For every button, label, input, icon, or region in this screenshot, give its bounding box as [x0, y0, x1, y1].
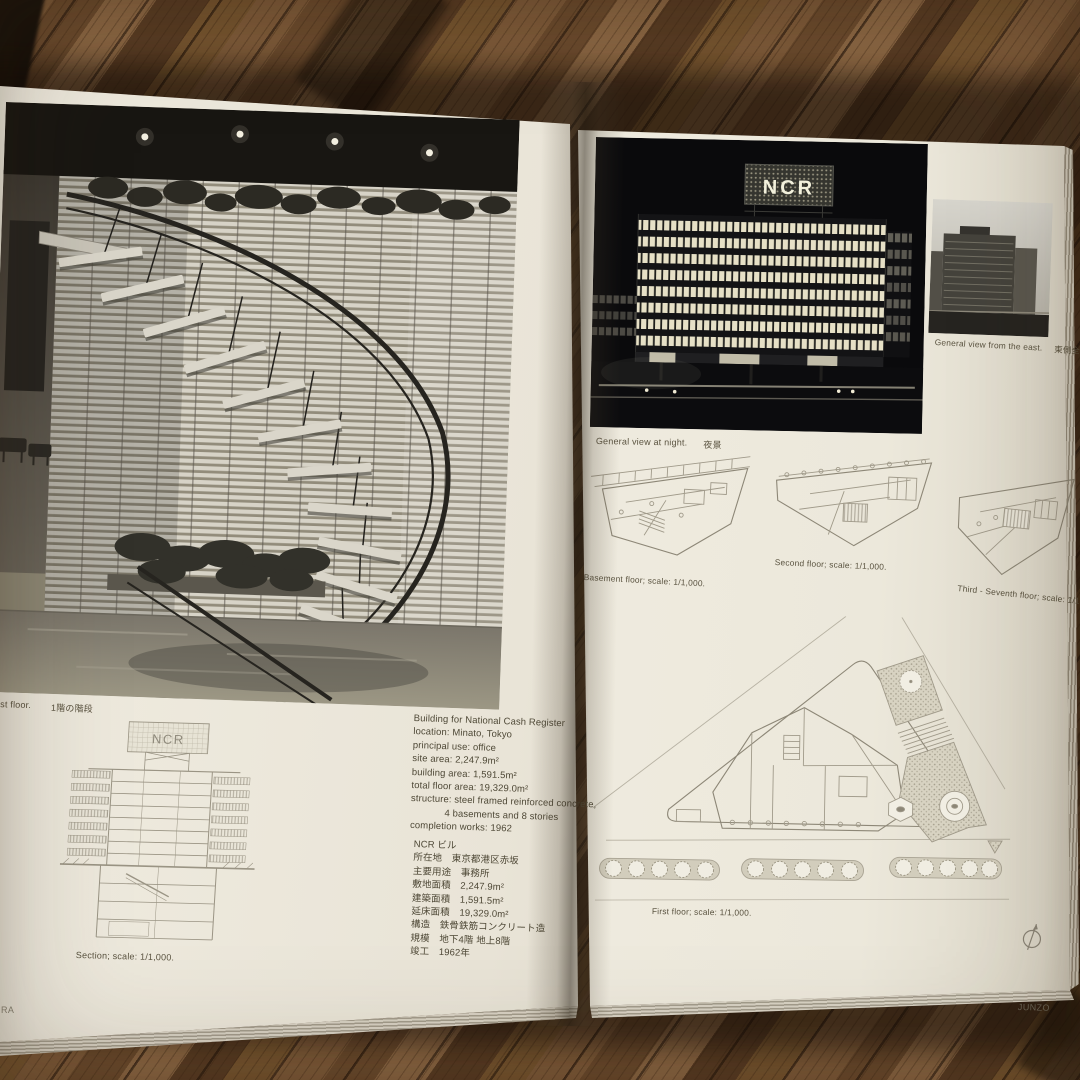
photo-vignette — [0, 0, 1080, 1080]
book-photo-scene: irst floor. 1階の階段 NCR — [0, 0, 1080, 1080]
